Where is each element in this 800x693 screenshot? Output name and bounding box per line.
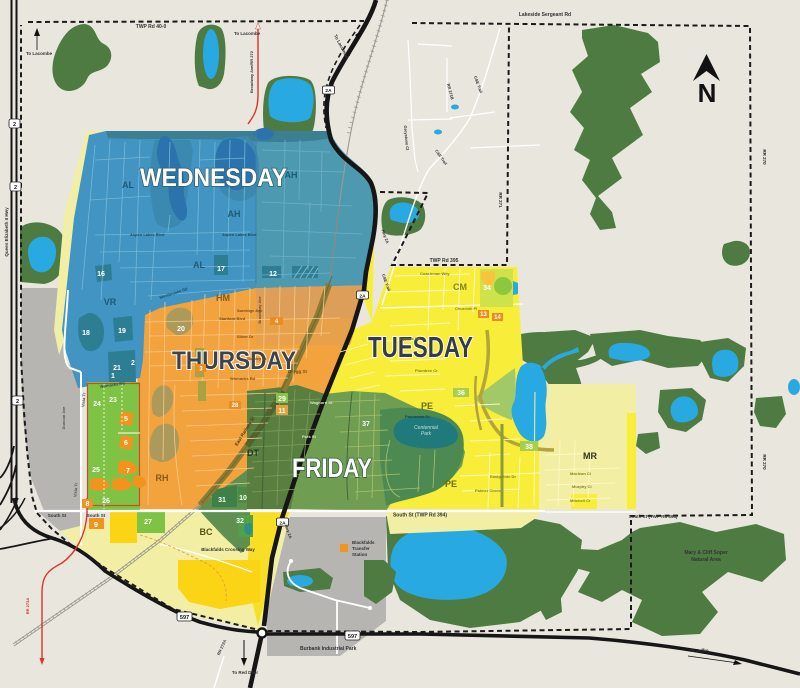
svg-text:Mary & Cliff Soper: Mary & Cliff Soper — [684, 550, 727, 556]
svg-text:597: 597 — [348, 634, 357, 640]
svg-text:1: 1 — [111, 373, 115, 380]
svg-text:South St (TWP Rd 394): South St (TWP Rd 394) — [629, 514, 678, 519]
svg-text:Blackfalds: Blackfalds — [352, 540, 375, 545]
svg-text:DT: DT — [247, 448, 259, 458]
svg-text:36: 36 — [457, 390, 465, 397]
svg-text:RR 270: RR 270 — [762, 454, 767, 470]
svg-text:Blackfalds Crossing Way: Blackfalds Crossing Way — [201, 547, 255, 552]
svg-text:Silver Dr: Silver Dr — [237, 334, 254, 339]
svg-text:14: 14 — [494, 315, 501, 321]
svg-text:25: 25 — [92, 467, 100, 474]
svg-text:RR 271: RR 271 — [498, 192, 503, 208]
svg-text:Eastpointe Dr: Eastpointe Dr — [490, 474, 516, 479]
svg-text:Churchill Pl: Churchill Pl — [455, 306, 477, 311]
svg-text:Plumtree Cr: Plumtree Cr — [415, 368, 438, 373]
svg-text:2: 2 — [13, 122, 16, 128]
svg-text:To Lacombe: To Lacombe — [26, 51, 53, 56]
svg-text:Coachman Way: Coachman Way — [420, 271, 450, 276]
svg-text:AH: AH — [228, 209, 241, 219]
svg-text:To Lacombe: To Lacombe — [234, 31, 261, 36]
svg-text:Maclean Cl: Maclean Cl — [570, 471, 591, 476]
svg-text:32: 32 — [236, 518, 244, 525]
svg-text:6: 6 — [124, 440, 128, 447]
svg-text:597: 597 — [180, 615, 189, 621]
svg-text:38: 38 — [525, 444, 533, 451]
svg-text:29: 29 — [278, 396, 286, 403]
svg-text:VR: VR — [104, 297, 117, 307]
svg-text:Aspen Lakes Blvd: Aspen Lakes Blvd — [222, 232, 257, 237]
svg-text:Natural Area: Natural Area — [691, 557, 721, 563]
svg-text:18: 18 — [82, 330, 90, 337]
svg-text:10: 10 — [239, 495, 247, 502]
svg-text:AH: AH — [285, 170, 298, 180]
svg-text:RR 270: RR 270 — [762, 149, 767, 165]
svg-text:17: 17 — [217, 266, 225, 273]
svg-text:11: 11 — [278, 408, 286, 415]
svg-text:Park St: Park St — [302, 434, 316, 439]
svg-text:AL: AL — [122, 180, 134, 190]
svg-text:Queen Elizabeth II Hwy: Queen Elizabeth II Hwy — [4, 207, 9, 257]
svg-text:N: N — [698, 78, 717, 108]
svg-text:Waghorn St: Waghorn St — [310, 400, 333, 405]
svg-text:24: 24 — [93, 401, 101, 408]
svg-text:Cyprus Rd: Cyprus Rd — [400, 336, 421, 341]
svg-text:16: 16 — [97, 271, 105, 278]
svg-text:THURSDAY: THURSDAY — [172, 347, 296, 375]
svg-text:AL: AL — [193, 260, 205, 270]
svg-text:Lakeside Sergeant Rd: Lakeside Sergeant Rd — [519, 12, 571, 18]
svg-text:21: 21 — [113, 365, 121, 372]
svg-text:5: 5 — [124, 416, 128, 423]
svg-text:7: 7 — [126, 468, 130, 475]
svg-text:2A: 2A — [359, 294, 366, 300]
svg-text:23: 23 — [109, 397, 117, 404]
svg-text:Aspen Lakes Blvd: Aspen Lakes Blvd — [130, 232, 165, 237]
svg-text:TUESDAY: TUESDAY — [368, 332, 473, 364]
svg-text:Palmer Circle: Palmer Circle — [475, 488, 501, 493]
svg-text:20: 20 — [177, 326, 185, 333]
svg-text:Panorama Dr: Panorama Dr — [405, 414, 430, 419]
svg-text:8: 8 — [86, 501, 90, 508]
svg-text:Stanley St: Stanley St — [247, 356, 267, 361]
svg-text:Mitchell Cr: Mitchell Cr — [570, 498, 591, 503]
svg-text:TWP Rd 40-0: TWP Rd 40-0 — [136, 24, 167, 30]
svg-text:Broadway Ave/RR 272: Broadway Ave/RR 272 — [249, 50, 254, 93]
svg-text:Gregg St: Gregg St — [288, 369, 308, 374]
svg-text:Murphy Cl: Murphy Cl — [572, 484, 592, 489]
svg-text:MR: MR — [583, 451, 597, 461]
svg-text:South St: South St — [48, 513, 67, 518]
svg-text:Womacks Rd: Womacks Rd — [230, 376, 256, 381]
svg-text:34: 34 — [483, 285, 491, 292]
svg-text:37: 37 — [362, 421, 370, 428]
svg-text:CM: CM — [453, 282, 467, 292]
svg-text:2: 2 — [16, 399, 19, 405]
svg-text:FRIDAY: FRIDAY — [292, 453, 372, 483]
svg-text:Park: Park — [421, 431, 432, 437]
svg-text:PE: PE — [445, 479, 457, 489]
svg-text:RR 273A: RR 273A — [25, 598, 30, 615]
svg-text:31: 31 — [218, 497, 226, 504]
svg-text:2: 2 — [131, 360, 135, 367]
svg-text:Burbank Industrial Park: Burbank Industrial Park — [300, 646, 357, 652]
svg-text:2A: 2A — [325, 88, 332, 94]
svg-text:Transfer: Transfer — [352, 546, 370, 551]
svg-text:26: 26 — [102, 498, 110, 505]
svg-text:28: 28 — [232, 403, 239, 409]
svg-text:Station: Station — [352, 552, 368, 557]
svg-text:South St (TWP Rd 394): South St (TWP Rd 394) — [393, 513, 447, 519]
svg-text:Sunridge Ave: Sunridge Ave — [237, 308, 263, 313]
svg-text:TWP Rd 395: TWP Rd 395 — [430, 258, 459, 264]
svg-text:13: 13 — [480, 312, 487, 318]
svg-text:Duncan Ave: Duncan Ave — [61, 406, 66, 430]
svg-text:WEDNESDAY: WEDNESDAY — [140, 164, 287, 192]
svg-text:RH: RH — [156, 473, 169, 483]
svg-text:2: 2 — [14, 185, 17, 191]
svg-text:12: 12 — [269, 271, 277, 278]
svg-text:PE: PE — [421, 401, 433, 411]
svg-text:19: 19 — [118, 328, 126, 335]
svg-text:South St: South St — [87, 513, 106, 518]
svg-text:27: 27 — [144, 519, 152, 526]
svg-text:HM: HM — [216, 293, 230, 303]
svg-text:To Joffre: To Joffre — [690, 648, 709, 653]
svg-text:To Red Deer: To Red Deer — [232, 670, 258, 675]
svg-text:Stanford Blvd: Stanford Blvd — [219, 316, 246, 321]
svg-text:9: 9 — [94, 522, 98, 529]
svg-text:BC: BC — [200, 527, 213, 537]
